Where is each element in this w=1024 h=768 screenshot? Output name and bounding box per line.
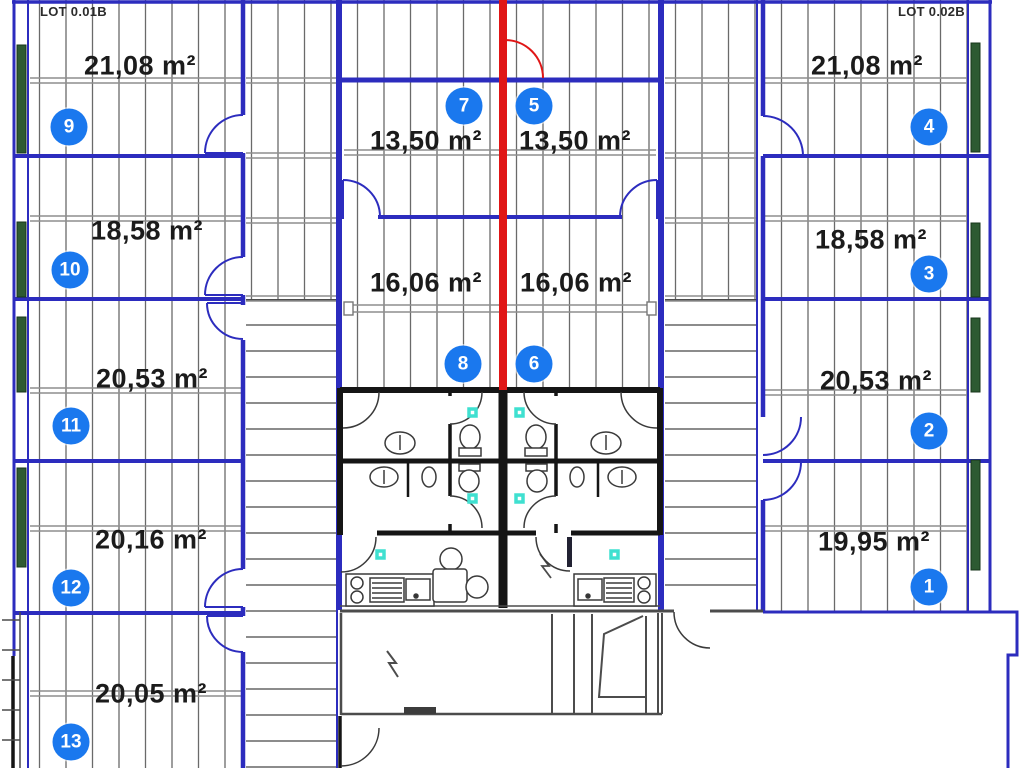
area-label-r3: 18,58 m² [815,225,927,256]
room-marker-4[interactable]: 4 [911,109,948,146]
area-label-r8: 16,06 m² [370,268,482,299]
room-marker-13[interactable]: 13 [53,724,90,761]
area-label-r10: 18,58 m² [91,216,203,247]
room-marker-11[interactable]: 11 [53,408,90,445]
area-label-r4: 21,08 m² [811,51,923,82]
room-marker-7[interactable]: 7 [446,88,483,125]
room-marker-1[interactable]: 1 [911,569,948,606]
area-label-r5: 13,50 m² [519,126,631,157]
area-label-r11: 20,53 m² [96,364,208,395]
area-label-r6: 16,06 m² [520,268,632,299]
area-label-r13: 20,05 m² [95,679,207,710]
area-label-r7: 13,50 m² [370,126,482,157]
lot-label-right: LOT 0.02B [898,4,965,19]
lot-label-left: LOT 0.01B [40,4,107,19]
room-marker-8[interactable]: 8 [445,346,482,383]
room-marker-10[interactable]: 10 [52,252,89,289]
room-marker-12[interactable]: 12 [53,570,90,607]
area-label-r1: 19,95 m² [818,527,930,558]
area-label-r9: 21,08 m² [84,51,196,82]
room-marker-2[interactable]: 2 [911,413,948,450]
floor-plan: LOT 0.01B LOT 0.02B 21,08 m² 18,58 m² 20… [0,0,1024,768]
area-label-r2: 20,53 m² [820,366,932,397]
room-marker-5[interactable]: 5 [516,88,553,125]
area-label-r12: 20,16 m² [95,525,207,556]
room-marker-3[interactable]: 3 [911,256,948,293]
room-marker-9[interactable]: 9 [51,109,88,146]
room-marker-6[interactable]: 6 [516,346,553,383]
